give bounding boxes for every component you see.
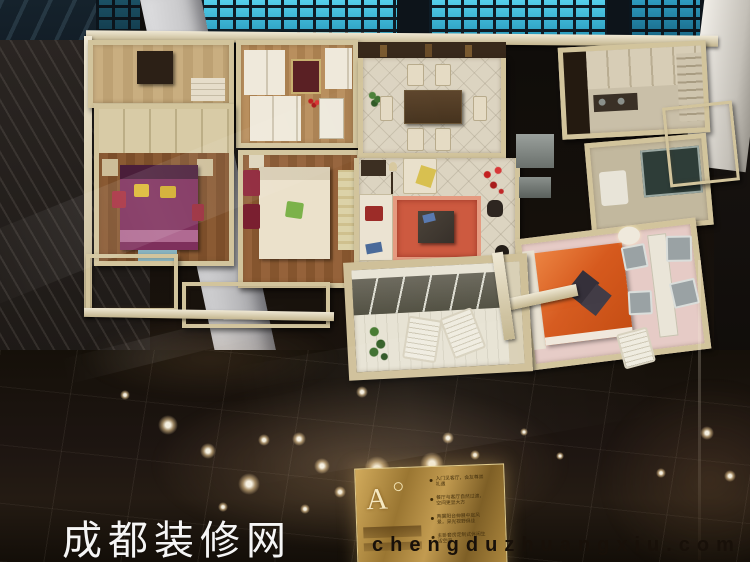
floor-lamp [389,162,397,171]
wall-picture-frame [291,59,320,94]
armchair [403,158,437,194]
kitchen-corridor [508,44,562,258]
plaque-feature-text: 入门见客厅，会友尊崇礼遇 [435,475,487,488]
entry-closet [325,48,352,89]
gray-cushion [620,243,648,271]
coffee-table [418,211,455,243]
study-dresser [191,78,225,101]
room-living [354,158,520,268]
nightstand [102,159,119,176]
yellow-throw [416,165,437,188]
watermark-site-url: chengduzhuangxiu.com [372,534,741,557]
glass-edge-highlight [698,260,701,560]
photo-scene: A 入门见客厅，会友尊崇礼遇 餐厅与客厅自然过渡，空间更显大方 两翼阳台伸展中庭… [0,0,750,562]
steel-appliance [516,134,554,168]
study-desk [137,51,174,85]
dining-chair [435,128,452,151]
plaque-feature-item: 餐厅与客厅自然过渡，空间更显大方 [430,494,500,510]
white-sofa [359,194,393,261]
stove-counter [593,93,638,112]
bullet-dot-icon [430,498,433,501]
plaque-feature-item: 入门见客厅，会友尊崇礼遇 [429,475,499,491]
dark-vase [487,200,503,217]
plaque-feature-text: 餐厅与客厅自然过渡，空间更显大方 [436,494,488,507]
blue-book [423,213,436,223]
plaque-feature-item: 两翼阳台伸展中庭风景，采光视野俱佳 [431,513,501,529]
burner [617,97,624,104]
plaque-unit-label: A [366,483,389,518]
bath-fixture [598,170,628,207]
small-frame [380,45,387,57]
red-flower-arrangement [478,162,509,204]
steel-appliance [519,177,551,198]
red-cushion [365,206,383,220]
gray-cushion [669,278,700,309]
bullet-dot-icon [430,479,433,482]
red-carpet [393,196,480,261]
gray-cushion [666,235,692,262]
plaque-superscript-circle [394,482,403,491]
watermark-site-name: 成都装修网 [62,508,292,562]
burner [598,98,605,105]
balcony-right [662,101,740,188]
entry-closet [244,50,284,95]
side-cabinet [361,160,386,176]
small-frame [465,45,472,57]
blue-book [366,242,384,255]
green-pillow [285,200,304,218]
room-study [88,40,234,108]
plaque-feature-text: 两翼阳台伸展中庭风景，采光视野俱佳 [437,513,489,526]
bullet-dot-icon [431,517,434,520]
red-armchair [243,204,260,230]
dining-chair [473,96,487,121]
